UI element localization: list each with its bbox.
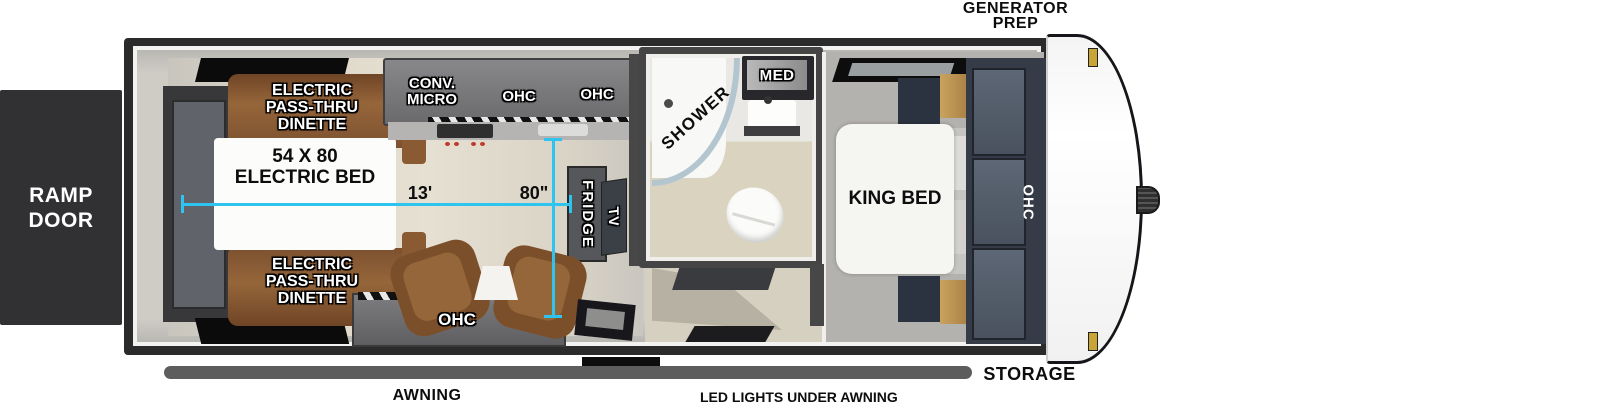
dim-tick-right [569, 195, 572, 213]
hall-bench [672, 266, 776, 290]
cap-clip-top [1088, 48, 1098, 67]
front-cap [1046, 34, 1143, 364]
dinette-bottom-line2: PASS-THRU [222, 273, 402, 290]
ramp-door-line2: DOOR [29, 208, 94, 233]
bed-label-line1: 54 X 80 [214, 146, 396, 167]
dinette-top-line1: ELECTRIC [222, 82, 402, 99]
bedroom-lower-wall [810, 264, 824, 326]
electric-bed-label: 54 X 80 ELECTRIC BED [214, 146, 396, 188]
king-bed-label: KING BED [836, 188, 954, 210]
ohc-bottom-label: OHC [352, 310, 562, 330]
entry-door-marker [582, 357, 660, 366]
dim-label-width: 80" [512, 183, 556, 204]
dinette-top-line2: PASS-THRU [222, 99, 402, 116]
dinette-bottom-line1: ELECTRIC [222, 256, 402, 273]
stove-knobs [445, 142, 489, 147]
bath-vanity-base [744, 126, 800, 136]
dim-label-length: 13' [400, 183, 440, 204]
ramp-door-line1: RAMP [29, 183, 94, 208]
bedroom-cabinet-dark-bottom [898, 276, 940, 322]
dinette-bottom-line3: DINETTE [222, 290, 402, 307]
entry-step [574, 299, 635, 341]
dim-tick-top [544, 138, 562, 141]
storage-label: STORAGE [972, 364, 1087, 385]
tv-panel: TV [601, 178, 627, 256]
conv-micro-line1: CONV. [388, 76, 476, 92]
bedroom-ohc-label-wrap: OHC [1008, 178, 1048, 226]
med-cabinet: MED [742, 56, 814, 100]
stove-cooktop [437, 124, 493, 138]
generator-prep-line1: GENERATOR [928, 1, 1103, 16]
dim-tick-left [181, 195, 184, 213]
kitchen-ohc-label-1: OHC [496, 88, 542, 105]
fridge-label: FRIDGE [579, 180, 596, 249]
conv-micro-line2: MICRO [388, 92, 476, 108]
awning-bar [164, 366, 972, 379]
ramp-door-label: RAMP DOOR [29, 183, 94, 233]
generator-prep-line2: PREP [928, 16, 1103, 31]
awning-label: AWNING [382, 387, 472, 404]
bedroom-cabinet-dark-top [898, 78, 940, 124]
bedroom-ohc-label: OHC [1020, 184, 1037, 220]
hitch-jack [1136, 186, 1160, 214]
hall-step-shadow [685, 326, 774, 342]
med-label: MED [760, 67, 795, 84]
tv-label: TV [606, 206, 622, 228]
ramp-door-box: RAMP DOOR [0, 90, 122, 325]
kitchen-counter [388, 122, 638, 140]
conv-micro-label: CONV. MICRO [388, 76, 476, 108]
kitchen-sink [538, 124, 588, 136]
kitchen-ohc-label-2: OHC [574, 86, 620, 103]
floorplan-scene: RAMP DOOR FRIDGE TV [0, 0, 1600, 404]
dinette-top-label: ELECTRIC PASS-THRU DINETTE [222, 82, 402, 133]
led-lights-label: LED LIGHTS UNDER AWNING [700, 389, 910, 404]
shower-drain [664, 99, 673, 108]
king-bed: KING BED [836, 124, 954, 274]
dinette-bottom-label: ELECTRIC PASS-THRU DINETTE [222, 256, 402, 307]
dim-line-vertical [552, 140, 555, 318]
dinette-top-line3: DINETTE [222, 116, 402, 133]
bed-label-line2: ELECTRIC BED [214, 167, 396, 188]
generator-prep-label: GENERATOR PREP [928, 1, 1103, 31]
cap-clip-bottom [1088, 332, 1098, 351]
bath-faucet [764, 96, 772, 104]
